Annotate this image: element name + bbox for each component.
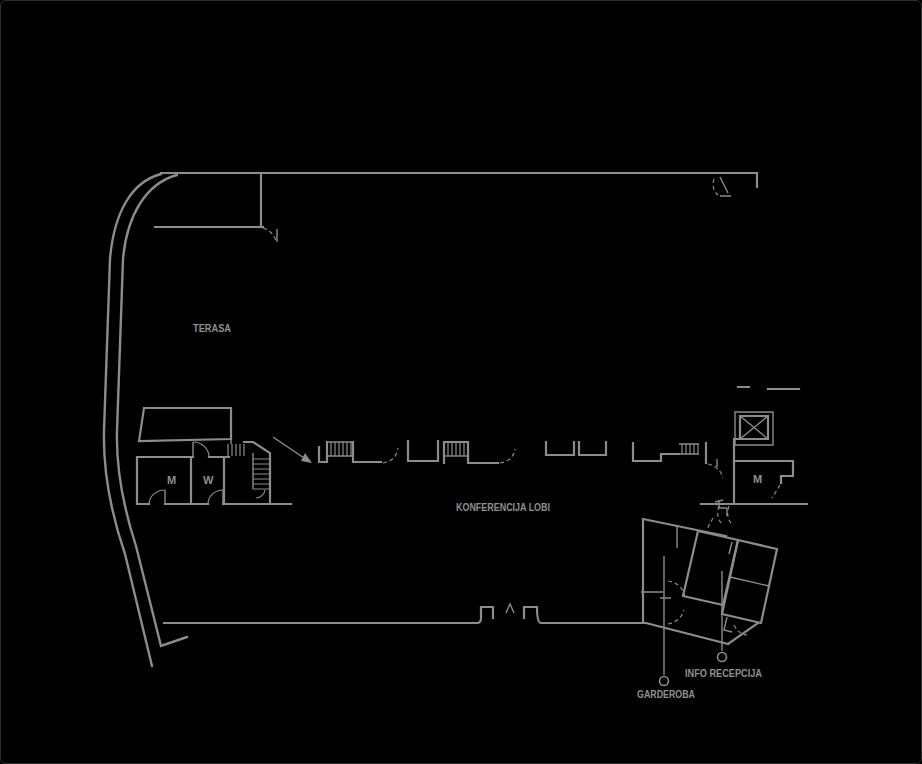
elevator-icon (740, 416, 768, 439)
partition-hatch-1 (331, 442, 351, 456)
direction-arrow-head (301, 453, 312, 463)
floorplan-screen: TERASA M W KONFERENCIJA LOBI M INFO RECE… (0, 0, 922, 764)
entrance-marker (506, 604, 514, 613)
terrace-divider-wall (155, 173, 277, 242)
stair-hatch-upper (228, 444, 244, 456)
garderoba-zone (641, 500, 727, 624)
leader-info-recepcija (718, 571, 727, 662)
garderoba-marker (660, 677, 669, 686)
label-garderoba: GARDEROBA (637, 689, 695, 700)
top-wall (161, 173, 757, 196)
partition-hatch-3 (682, 444, 698, 454)
canopy-outline (139, 408, 231, 441)
info-recepcija-marker (718, 653, 727, 662)
stairs (228, 408, 312, 504)
outer-boundary-wall (104, 174, 187, 666)
corridor-door-swings (718, 506, 733, 525)
tilted-entry-steps (715, 500, 727, 516)
label-terasa: TERASA (193, 323, 231, 334)
lobby-north-wall (319, 439, 742, 478)
partition-hatch-2 (448, 442, 464, 456)
label-toilet-m-left: M (167, 474, 176, 486)
tilted-rooms (683, 531, 777, 635)
north-wall-segments (738, 387, 799, 389)
label-toilet-m-right: M (753, 473, 762, 485)
top-door-leaf (720, 177, 731, 196)
door-swings (149, 442, 223, 504)
floorplan-drawing: TERASA M W KONFERENCIJA LOBI M INFO RECE… (1, 1, 922, 764)
leader-garderoba (660, 556, 669, 686)
label-info-recepcija: INFO RECEPCIJA (685, 668, 762, 679)
elevator (735, 412, 773, 445)
top-door-swing (713, 179, 718, 195)
direction-arrow-line (273, 437, 307, 460)
stair-treads (253, 459, 270, 489)
label-toilet-w: W (203, 474, 214, 486)
label-konferencija-lobi: KONFERENCIJA LOBI (456, 502, 550, 513)
door-leaves (165, 442, 223, 504)
